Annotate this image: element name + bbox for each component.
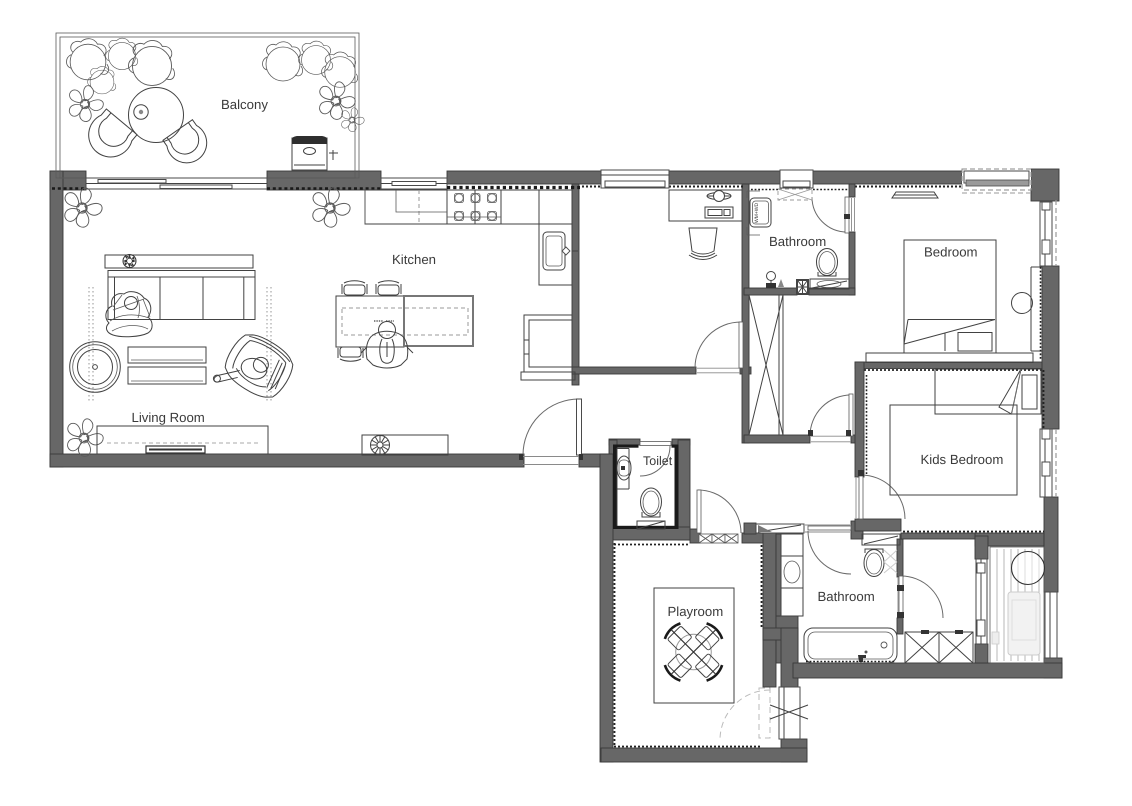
svg-text:Bathroom: Bathroom bbox=[769, 234, 826, 249]
svg-text:Balcony: Balcony bbox=[221, 97, 268, 112]
svg-text:Bedroom: Bedroom bbox=[924, 245, 978, 260]
svg-text:Toilet: Toilet bbox=[643, 454, 673, 468]
svg-text:Kids Bedroom: Kids Bedroom bbox=[921, 452, 1004, 467]
svg-text:Kitchen: Kitchen bbox=[392, 252, 436, 267]
svg-text:Bathroom: Bathroom bbox=[818, 589, 875, 604]
svg-text:WM+WD: WM+WD bbox=[754, 202, 760, 223]
svg-text:Living Room: Living Room bbox=[132, 410, 205, 425]
svg-text:Playroom: Playroom bbox=[668, 604, 724, 619]
